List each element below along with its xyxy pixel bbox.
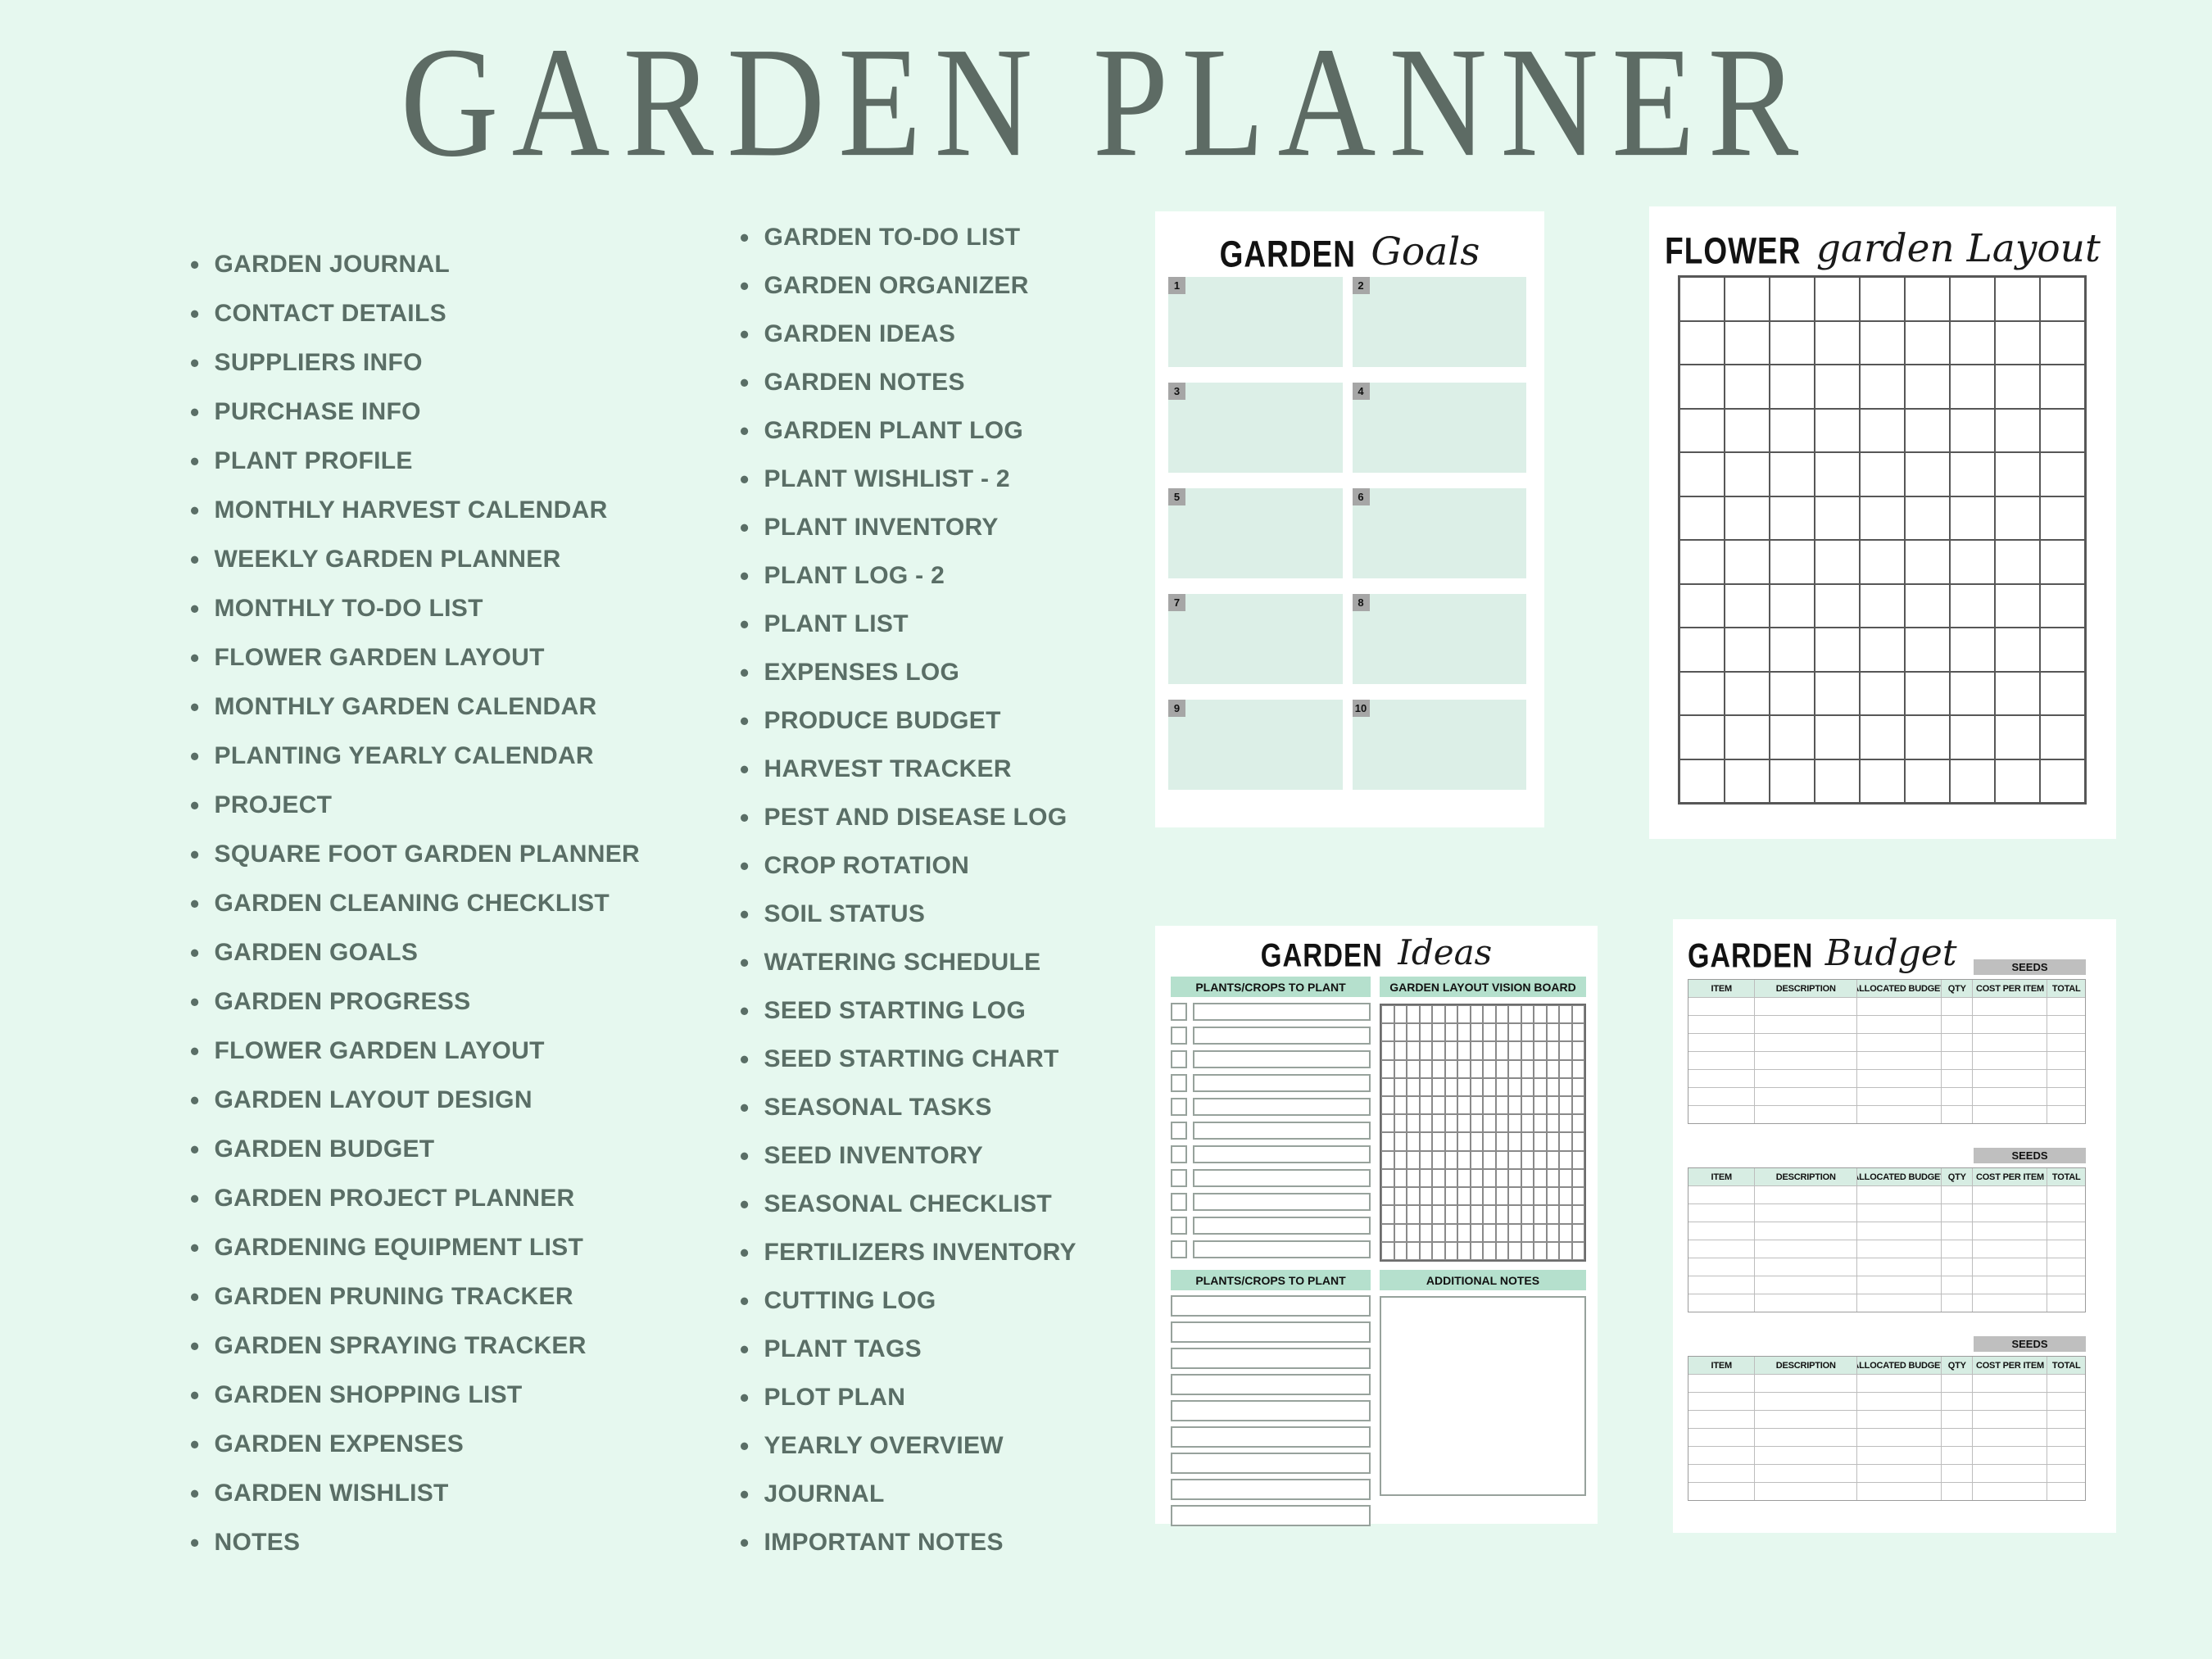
list-item-label: GARDEN LAYOUT DESIGN [215,1086,533,1114]
grid-cell [1770,584,1815,628]
grid-cell [1860,628,1905,672]
grid-cell [1508,1005,1521,1023]
bullet-icon: • [190,792,200,818]
column-header: ALLOCATED BUDGET [1857,1357,1942,1375]
grid-cell [1547,1151,1560,1169]
bullet-icon: • [190,1480,200,1507]
grid-cell [1432,1205,1445,1223]
list-item: •SOIL STATUS [740,890,1077,938]
card-title: GARDEN Goals [1155,229,1544,274]
list-item: •GARDEN BUDGET [190,1125,640,1174]
grid-cell [1950,321,1995,365]
table-cell [1942,1222,1973,1240]
table-cell [1688,1393,1755,1411]
bullet-icon: • [740,1433,750,1459]
table-cell [1942,998,1973,1016]
table-cell [1973,1393,2047,1411]
list-item: •GARDEN ORGANIZER [740,261,1077,310]
bullet-icon: • [190,497,200,524]
grid-cell [2040,584,2085,628]
grid-cell [1860,365,1905,409]
checklist-row [1171,1050,1371,1068]
grid-cell [1394,1169,1407,1187]
checklist-row [1171,1240,1371,1258]
grid-cell [1432,1151,1445,1169]
table-cell [1755,1447,1857,1465]
grid-cell [1534,1041,1547,1059]
checklist-row [1171,1098,1371,1116]
list-item-label: PLOT PLAN [764,1384,906,1412]
table-row [1688,1070,2085,1088]
table-row [1688,1204,2085,1222]
bullet-icon: • [190,301,200,327]
goal-number: 4 [1353,383,1370,400]
list-item: •PLANT INVENTORY [740,503,1077,551]
goal-box: 2 [1353,277,1527,367]
grid-cell [1572,1242,1585,1260]
table-cell [2047,1016,2085,1034]
section-header: PLANTS/CROPS TO PLANT [1171,1270,1371,1290]
grid-cell [1420,1041,1433,1059]
grid-cell [1905,496,1950,541]
grid-cell [1995,540,2040,584]
grid-cell [1483,1187,1496,1205]
grid-cell [1815,759,1860,804]
bullet-icon: • [740,998,750,1024]
grid-cell [1521,1060,1534,1078]
vision-board-grid [1380,1004,1586,1262]
list-item-label: PURCHASE INFO [215,398,421,426]
table-cell [1755,1393,1857,1411]
table-cell [1973,1088,2047,1106]
column-header: QTY [1942,1357,1973,1375]
grid-cell [1534,1169,1547,1187]
grid-cell [1407,1151,1420,1169]
grid-cell [1815,321,1860,365]
grid-cell [1905,584,1950,628]
list-item-label: GARDEN CLEANING CHECKLIST [215,890,610,918]
grid-cell [1725,365,1770,409]
grid-cell [1559,1023,1572,1041]
list-item-label: GARDEN NOTES [764,369,965,397]
grid-cell [1471,1151,1484,1169]
table-cell [1973,1294,2047,1312]
table-row [1688,998,2085,1016]
grid-cell [1521,1224,1534,1242]
list-item-label: GARDEN PLANT LOG [764,417,1023,445]
table-cell [1688,1465,1755,1483]
table-cell [2047,1411,2085,1429]
list-item: •GARDEN EXPENSES [190,1420,640,1469]
grid-cell [1725,672,1770,716]
grid-cell [1905,759,1950,804]
table-cell [2047,1447,2085,1465]
grid-cell [1420,1132,1433,1150]
grid-cell [2040,277,2085,321]
table-cell [1857,1375,1942,1393]
bullet-icon: • [190,1382,200,1408]
grid-cell [1471,1041,1484,1059]
grid-cell [1457,1060,1471,1078]
table-cell [1942,1106,1973,1123]
grid-cell [1725,540,1770,584]
table-cell [1857,1483,1942,1500]
grid-cell [1905,540,1950,584]
bullet-icon: • [190,940,200,966]
list-item-label: NOTES [215,1529,301,1557]
grid-cell [2040,759,2085,804]
grid-cell [1950,452,1995,496]
table-row [1688,1222,2085,1240]
grid-cell [1471,1005,1484,1023]
bullet-icon: • [190,448,200,474]
bullet-icon: • [740,805,750,831]
table-cell [2047,1465,2085,1483]
list-item-label: GARDEN PRUNING TRACKER [215,1283,573,1311]
grid-cell [1445,1023,1458,1041]
grid-cell [1432,1005,1445,1023]
table-cell [1973,1276,2047,1294]
plants-to-plant-section-2: PLANTS/CROPS TO PLANT [1171,1270,1371,1526]
preview-card-garden-ideas: GARDEN Ideas PLANTS/CROPS TO PLANT GARDE… [1155,926,1598,1524]
grid-cell [1521,1205,1534,1223]
grid-cell [1394,1060,1407,1078]
list-item-label: CONTACT DETAILS [215,300,446,328]
grid-cell [1905,277,1950,321]
grid-cell [1432,1114,1445,1132]
grid-cell [1407,1132,1420,1150]
bullet-icon: • [190,1136,200,1163]
bullet-icon: • [190,891,200,917]
goals-grid: 12345678910 [1168,277,1526,790]
card-title-main: GARDEN [1261,936,1383,974]
garden-planner-page: GARDEN PLANNER •GARDEN JOURNAL•CONTACT D… [0,0,2212,1659]
grid-cell [1725,759,1770,804]
checklist-row [1171,1122,1371,1140]
table-cell [1688,1204,1755,1222]
grid-cell [1407,1041,1420,1059]
goal-number: 8 [1353,594,1370,611]
bullet-icon: • [740,1046,750,1072]
list-item: •GARDEN SPRAYING TRACKER [190,1321,640,1371]
grid-cell [1770,409,1815,453]
table-cell [1688,1411,1755,1429]
grid-cell [1547,1096,1560,1114]
list-item: •MONTHLY GARDEN CALENDAR [190,682,640,732]
grid-cell [1572,1114,1585,1132]
table-cell [1973,1447,2047,1465]
entry-field [1193,1193,1371,1211]
list-item: •CROP ROTATION [740,841,1077,890]
grid-cell [1905,452,1950,496]
list-item: •SEED INVENTORY [740,1131,1077,1180]
table-cell [1688,1483,1755,1500]
table-cell [2047,1258,2085,1276]
list-item-label: FERTILIZERS INVENTORY [764,1239,1077,1267]
entry-field [1193,1217,1371,1235]
grid-cell [1860,540,1905,584]
checklist-row [1171,1217,1371,1235]
grid-cell [1394,1242,1407,1260]
table-row [1688,1258,2085,1276]
grid-cell [1420,1242,1433,1260]
grid-cell [1508,1060,1521,1078]
grid-cell [1559,1151,1572,1169]
list-item-label: GARDEN JOURNAL [215,251,451,279]
table-cell [1942,1186,1973,1204]
grid-cell [1420,1114,1433,1132]
grid-cell [1394,1023,1407,1041]
table-cell [1688,1276,1755,1294]
table-cell [1688,1052,1755,1070]
grid-cell [1547,1132,1560,1150]
grid-cell [1679,321,1725,365]
grid-cell [1445,1060,1458,1078]
grid-cell [1547,1169,1560,1187]
grid-cell [1860,672,1905,716]
grid-cell [1534,1224,1547,1242]
grid-cell [1725,496,1770,541]
grid-cell [1457,1005,1471,1023]
table-cell [1755,1016,1857,1034]
notes-box [1380,1296,1586,1496]
card-title-script: Ideas [1398,932,1492,972]
contents-list-column-2: •GARDEN TO-DO LIST•GARDEN ORGANIZER•GARD… [740,213,1077,1566]
table-cell [1973,998,2047,1016]
table-cell [1973,1411,2047,1429]
table-cell [1973,1070,2047,1088]
list-item: •SEASONAL CHECKLIST [740,1180,1077,1228]
grid-cell [1420,1023,1433,1041]
grid-cell [1950,540,1995,584]
grid-cell [1995,321,2040,365]
grid-cell [1860,277,1905,321]
list-item: •WEEKLY GARDEN PLANNER [190,535,640,584]
list-item-label: CROP ROTATION [764,852,970,880]
grid-cell [1995,496,2040,541]
preview-card-flower-garden-layout: FLOWER garden Layout [1649,206,2116,839]
grid-cell [1572,1224,1585,1242]
table-cell [2047,1240,2085,1258]
table-cell [1942,1276,1973,1294]
list-item: •SUPPLIERS INFO [190,338,640,388]
list-item-label: JOURNAL [764,1480,885,1508]
bullet-icon: • [740,418,750,444]
section-header: GARDEN LAYOUT VISION BOARD [1380,977,1586,997]
card-title-script: Goals [1371,229,1480,274]
table-cell [1857,1222,1942,1240]
grid-cell [1496,1096,1509,1114]
grid-cell [1381,1205,1394,1223]
list-item-label: GARDEN WISHLIST [215,1480,449,1507]
table-cell [1973,1375,2047,1393]
table-cell [1942,1052,1973,1070]
list-item-label: GARDEN ORGANIZER [764,272,1029,300]
grid-cell [1432,1187,1445,1205]
grid-cell [1770,321,1815,365]
grid-cell [1572,1005,1585,1023]
grid-cell [1679,759,1725,804]
grid-cell [1407,1114,1420,1132]
list-item-label: PLANTING YEARLY CALENDAR [215,742,594,770]
grid-cell [1381,1151,1394,1169]
goal-number: 7 [1168,594,1185,611]
grid-cell [1457,1242,1471,1260]
goal-box: 5 [1168,488,1343,578]
grid-cell [1407,1224,1420,1242]
grid-cell [1471,1078,1484,1096]
table-cell [2047,1276,2085,1294]
table-cell [1942,1258,1973,1276]
table-cell [1942,1465,1973,1483]
list-item-label: GARDEN EXPENSES [215,1430,465,1458]
list-item-label: PEST AND DISEASE LOG [764,804,1067,832]
grid-cell [1815,409,1860,453]
grid-cell [1521,1187,1534,1205]
list-item: •PEST AND DISEASE LOG [740,793,1077,841]
grid-cell [1860,759,1905,804]
list-item-label: PLANT WISHLIST - 2 [764,465,1010,493]
grid-cell [1407,1023,1420,1041]
grid-cell [1432,1242,1445,1260]
grid-cell [1559,1114,1572,1132]
table-cell [2047,1222,2085,1240]
list-item: •SEED STARTING LOG [740,986,1077,1035]
grid-cell [1496,1023,1509,1041]
list-item: •NOTES [190,1518,640,1567]
list-item-label: PLANT TAGS [764,1335,922,1363]
grid-cell [1860,584,1905,628]
table-row [1688,1294,2085,1312]
grid-cell [1381,1114,1394,1132]
goal-number: 9 [1168,700,1185,717]
bullet-icon: • [190,399,200,425]
column-header: ITEM [1688,980,1755,998]
grid-cell [1407,1060,1420,1078]
grid-cell [1572,1060,1585,1078]
budget-table: ITEMDESCRIPTIONALLOCATED BUDGETQTYCOST P… [1688,979,2086,1124]
checkbox [1171,1098,1187,1116]
goal-box: 9 [1168,700,1343,790]
grid-cell [1483,1132,1496,1150]
flower-layout-grid [1678,275,2087,805]
table-row [1688,1106,2085,1123]
grid-cell [1770,540,1815,584]
grid-cell [1534,1151,1547,1169]
list-item-label: GARDENING EQUIPMENT LIST [215,1234,584,1262]
grid-cell [1496,1205,1509,1223]
card-title: FLOWER garden Layout [1649,226,2116,271]
grid-cell [1725,584,1770,628]
list-item-label: SEASONAL CHECKLIST [764,1190,1053,1218]
grid-cell [1950,409,1995,453]
list-item-label: MONTHLY TO-DO LIST [215,595,483,623]
list-item-label: MONTHLY HARVEST CALENDAR [215,496,608,524]
grid-cell [1995,672,2040,716]
grid-cell [1457,1023,1471,1041]
checkbox [1171,1240,1187,1258]
goal-number: 6 [1353,488,1370,505]
table-row [1688,1483,2085,1500]
list-item-label: SEASONAL TASKS [764,1094,992,1122]
table-row [1688,1240,2085,1258]
grid-cell [1521,1242,1534,1260]
grid-cell [1508,1242,1521,1260]
grid-cell [1420,1078,1433,1096]
grid-cell [1483,1242,1496,1260]
entry-field [1193,1003,1371,1021]
grid-cell [1496,1187,1509,1205]
table-cell [1857,1070,1942,1088]
grid-cell [1770,715,1815,759]
column-header: TOTAL [2047,1357,2085,1375]
grid-cell [1995,715,2040,759]
grid-cell [1508,1041,1521,1059]
seeds-label: SEEDS [1974,1148,2086,1163]
grid-cell [1394,1041,1407,1059]
section-header: ADDITIONAL NOTES [1380,1270,1586,1290]
grid-cell [1432,1041,1445,1059]
table-cell [1755,1088,1857,1106]
grid-cell [1860,409,1905,453]
budget-tables: SEEDSITEMDESCRIPTIONALLOCATED BUDGETQTYC… [1688,959,2086,1525]
table-cell [1942,1447,1973,1465]
table-cell [2047,1393,2085,1411]
grid-cell [1471,1205,1484,1223]
grid-cell [1420,1151,1433,1169]
entry-field [1171,1321,1371,1343]
list-item: •GARDEN PLANT LOG [740,406,1077,455]
table-cell [1942,1411,1973,1429]
grid-cell [1995,452,2040,496]
column-header: QTY [1942,980,1973,998]
grid-cell [1420,1096,1433,1114]
grid-cell [1534,1242,1547,1260]
grid-cell [1407,1005,1420,1023]
list-item: •WATERING SCHEDULE [740,938,1077,986]
grid-cell [1394,1205,1407,1223]
grid-cell [1679,540,1725,584]
list-item: •PLANT TAGS [740,1325,1077,1373]
grid-cell [1445,1078,1458,1096]
table-cell [1755,1483,1857,1500]
list-item: •PLANT LIST [740,600,1077,648]
grid-cell [1860,452,1905,496]
table-row [1688,1016,2085,1034]
grid-cell [1420,1005,1433,1023]
checkbox [1171,1027,1187,1045]
grid-cell [1445,1169,1458,1187]
list-item: •SEASONAL TASKS [740,1083,1077,1131]
grid-cell [1457,1169,1471,1187]
list-item: •GARDENING EQUIPMENT LIST [190,1223,640,1272]
table-row [1688,1088,2085,1106]
checkbox [1171,1145,1187,1163]
grid-cell [1483,1169,1496,1187]
table-cell [1973,1204,2047,1222]
grid-cell [1508,1224,1521,1242]
grid-cell [1995,409,2040,453]
list-item-label: IMPORTANT NOTES [764,1529,1004,1557]
grid-cell [1995,759,2040,804]
list-item: •IMPORTANT NOTES [740,1518,1077,1566]
column-header: DESCRIPTION [1755,980,1857,998]
list-item: •CONTACT DETAILS [190,289,640,338]
grid-cell [1559,1205,1572,1223]
table-cell [1688,1375,1755,1393]
goal-number: 2 [1353,277,1370,294]
grid-cell [1770,628,1815,672]
